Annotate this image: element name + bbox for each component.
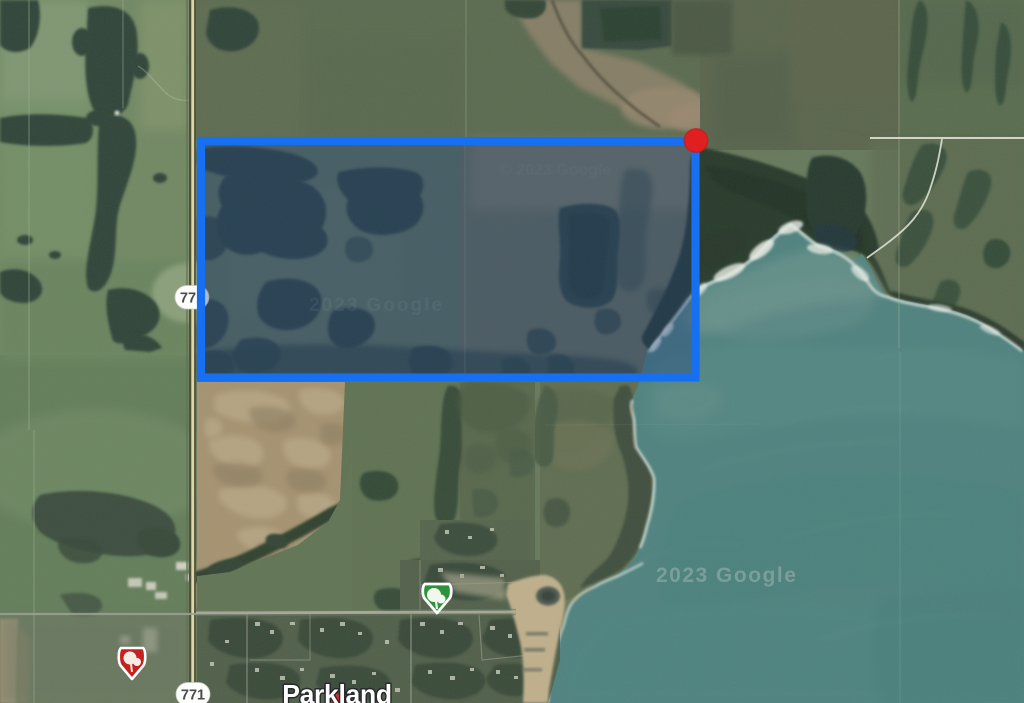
svg-text:771: 771 <box>181 688 205 703</box>
svg-text:Parkland: Parkland <box>282 680 392 703</box>
